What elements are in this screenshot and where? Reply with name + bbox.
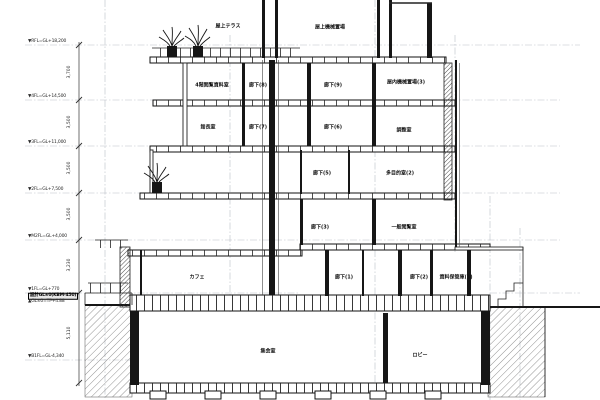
section-drawing-canvas bbox=[0, 0, 600, 400]
wall-details bbox=[85, 3, 523, 307]
planter-icon bbox=[144, 163, 169, 193]
section-drawing-sheet: 屋上テラス屋上機械置場4階閲覧資料室廊下(8)廊下(9)屋内機械置場(3)館長室… bbox=[0, 0, 600, 400]
dimension-line bbox=[76, 42, 82, 386]
